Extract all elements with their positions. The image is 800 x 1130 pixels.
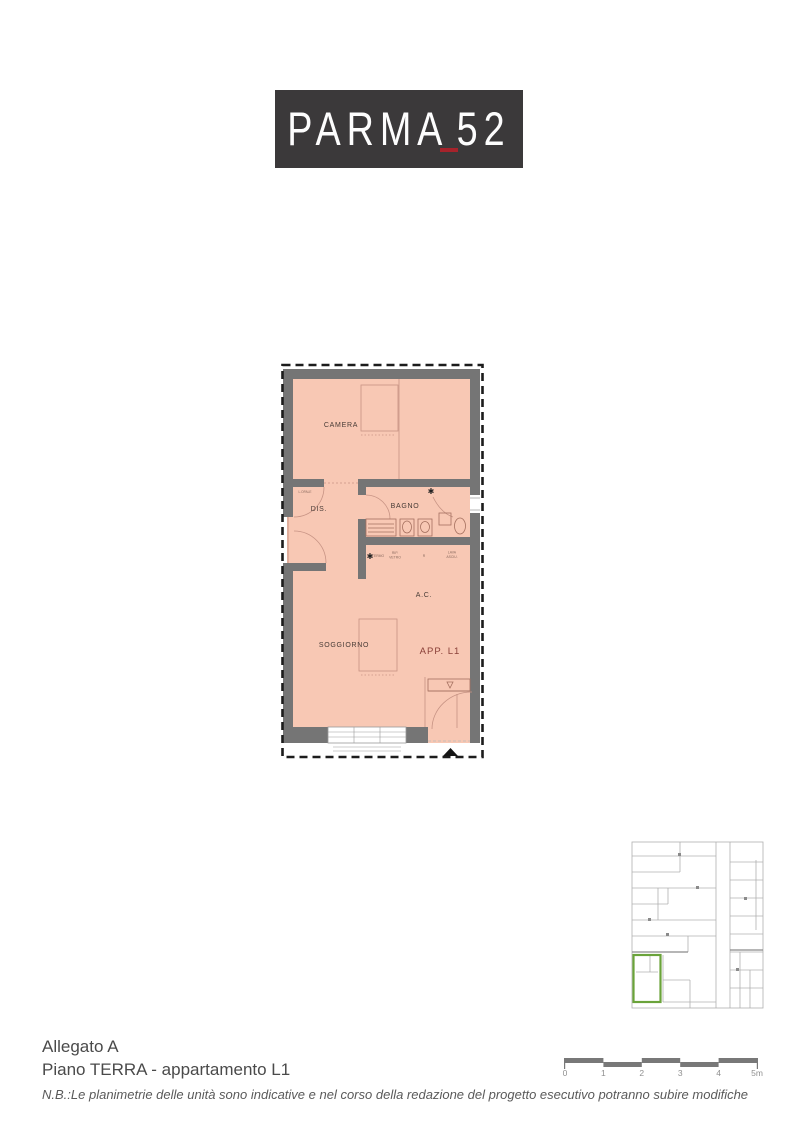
logo-red-underscore: [440, 148, 458, 152]
key-plan-marks: [648, 853, 747, 971]
entrance-arrow-icon: [443, 748, 458, 756]
label-soggiorno: SOGGIORNO: [319, 642, 369, 649]
key-plan-walls: [632, 842, 763, 1008]
label-apartment: APP. L1: [420, 646, 461, 657]
svg-text:TERMO: TERMO: [372, 554, 385, 558]
attachment-title: Allegato A: [42, 1036, 772, 1057]
parma52-logo: PARMA52: [275, 90, 523, 168]
footer: Allegato A Piano TERRA - appartamento L1…: [42, 1036, 772, 1102]
logo-text: PARMA52: [287, 101, 510, 156]
svg-text:L.OPALE: L.OPALE: [298, 490, 311, 494]
label-bagno: BAGNO: [391, 503, 420, 510]
window-right: [470, 495, 480, 513]
document-page: PARMA52: [0, 0, 800, 1130]
star-symbol-bagno: ✱: [428, 487, 435, 496]
apartment-floor-plan: ✱ ✱ TERMO RIP. VETRO R LAVA ASCIU. L.OPA…: [281, 361, 489, 763]
svg-text:LAVA: LAVA: [448, 551, 457, 555]
svg-text:ASCIU.: ASCIU.: [446, 555, 457, 559]
svg-text:VETRO: VETRO: [389, 556, 401, 560]
window-sill-lines: [333, 747, 401, 751]
window-bottom: [328, 727, 406, 743]
label-dis: DIS.: [311, 506, 327, 513]
unit-highlight-box: [634, 955, 661, 1002]
disclaimer-note: N.B.:Le planimetrie delle unità sono ind…: [42, 1087, 772, 1102]
label-camera: CAMERA: [324, 422, 358, 429]
floor-apartment-title: Piano TERRA - appartamento L1: [42, 1059, 772, 1080]
label-ac: A.C.: [416, 592, 432, 599]
svg-text:RIP.: RIP.: [392, 551, 398, 555]
logo-word: PARMA: [287, 101, 448, 155]
building-key-plan: [628, 840, 768, 1012]
logo-number: 52: [457, 101, 511, 155]
